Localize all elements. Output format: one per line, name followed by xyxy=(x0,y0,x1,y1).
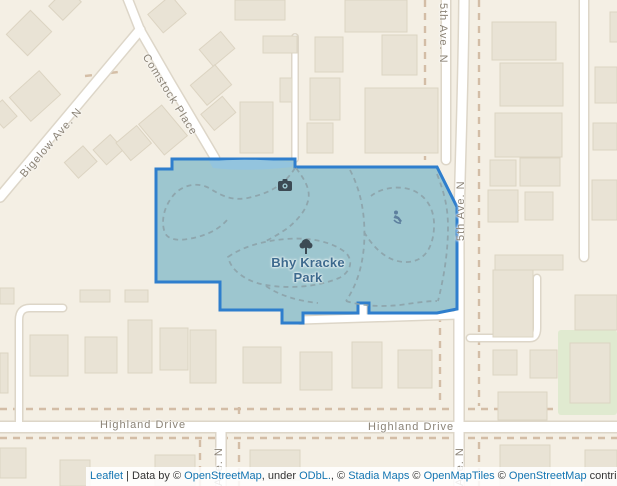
attribution-text: , © xyxy=(331,470,348,482)
openmaptiles-link[interactable]: OpenMapTiles xyxy=(424,470,495,482)
map-canvas[interactable]: Bhy Kracke Park Comstock Place Bigelow A… xyxy=(0,0,617,486)
building xyxy=(315,37,343,72)
building xyxy=(190,330,216,383)
attribution-text: © xyxy=(495,470,509,482)
openstreetmap-link[interactable]: OpenStreetMap xyxy=(184,470,262,482)
building xyxy=(398,350,432,388)
building xyxy=(493,270,533,337)
building xyxy=(0,288,14,304)
building xyxy=(243,347,281,383)
building xyxy=(307,123,333,153)
building xyxy=(575,295,617,330)
building xyxy=(352,342,382,388)
attribution-text: , under xyxy=(262,470,299,482)
attribution-bar: Leaflet | Data by © OpenStreetMap, under… xyxy=(86,467,617,486)
building xyxy=(382,35,417,75)
building xyxy=(160,328,188,370)
building xyxy=(492,22,556,60)
odbl-link[interactable]: ODbL. xyxy=(299,470,331,482)
building xyxy=(610,12,617,42)
building xyxy=(310,78,340,120)
attribution-text: contributors xyxy=(587,470,617,482)
building xyxy=(263,36,297,53)
building xyxy=(30,335,68,376)
building xyxy=(530,350,557,378)
building xyxy=(592,180,617,220)
stadia-maps-link[interactable]: Stadia Maps xyxy=(348,470,409,482)
leaflet-link[interactable]: Leaflet xyxy=(90,470,123,482)
building xyxy=(280,78,292,102)
building xyxy=(235,0,285,20)
attribution-text: | Data by © xyxy=(123,470,184,482)
road-south-of-park xyxy=(300,315,458,320)
building xyxy=(520,158,560,186)
building xyxy=(345,0,407,32)
building xyxy=(488,190,518,222)
building xyxy=(593,123,617,150)
building xyxy=(80,290,110,302)
building xyxy=(490,160,516,186)
building xyxy=(125,290,148,302)
building xyxy=(500,63,563,106)
attribution-text: © xyxy=(409,470,423,482)
building xyxy=(300,352,332,390)
building xyxy=(570,343,610,403)
building xyxy=(85,337,117,373)
building xyxy=(525,192,553,220)
building xyxy=(240,102,273,153)
basemap-tiles xyxy=(0,0,617,486)
building xyxy=(365,88,438,153)
building xyxy=(128,320,152,373)
building xyxy=(0,353,8,393)
building xyxy=(595,67,617,103)
building xyxy=(493,350,517,375)
building xyxy=(0,448,26,478)
building xyxy=(495,113,562,157)
road-5th-ave xyxy=(459,0,464,486)
building xyxy=(498,392,547,420)
building xyxy=(495,255,563,270)
openstreetmap-contributors-link[interactable]: OpenStreetMap xyxy=(509,470,587,482)
